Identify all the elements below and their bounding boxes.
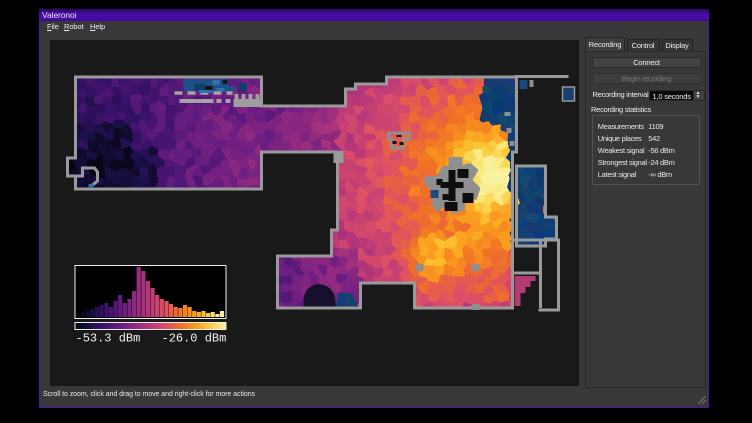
svg-text:-53.3 dBm: -53.3 dBm: [75, 332, 140, 346]
svg-text:-26.0 dBm: -26.0 dBm: [161, 332, 226, 346]
